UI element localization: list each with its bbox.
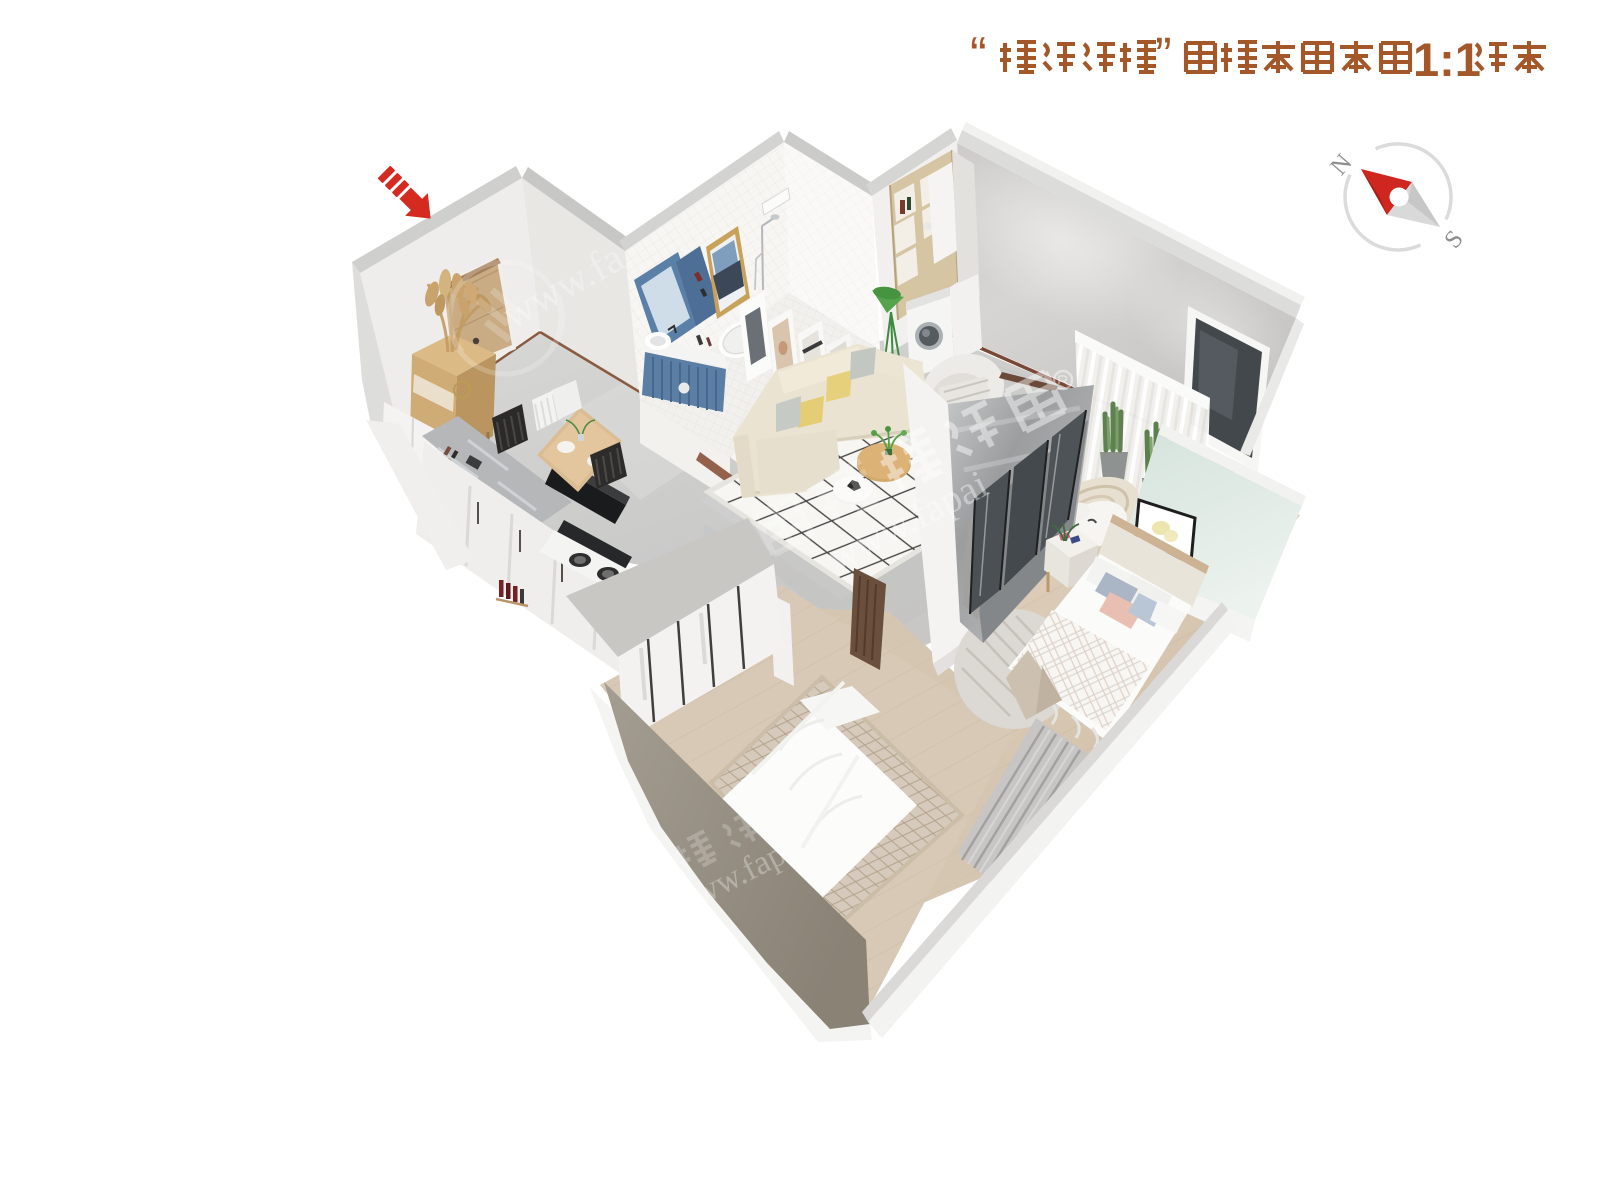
svg-text:1:1: 1:1: [1413, 33, 1481, 86]
svg-text:”: ”: [1155, 27, 1172, 83]
svg-text:“: “: [970, 27, 987, 83]
